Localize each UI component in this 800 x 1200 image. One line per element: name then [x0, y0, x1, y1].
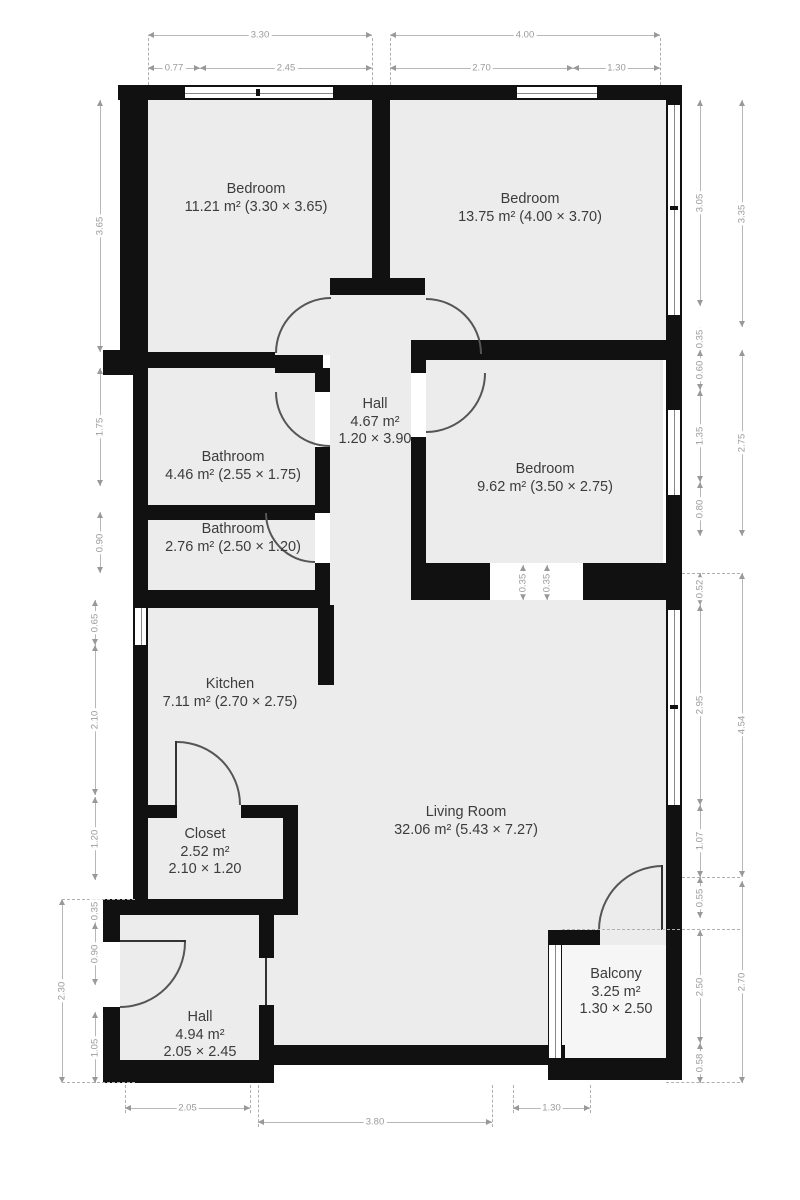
dimension-label: 1.07 [695, 830, 706, 853]
wall [666, 315, 682, 410]
room-name: Living Room [394, 804, 538, 822]
dimension: 3.80 [258, 1115, 492, 1129]
window [517, 85, 597, 100]
dimension: 1.75 [93, 368, 107, 486]
dimension: 0.65 [88, 600, 102, 645]
room-area: 2.76 m² (2.50 × 1.20) [165, 539, 301, 557]
leader-line [372, 38, 373, 85]
wall [133, 805, 177, 818]
room-area: 9.62 m² (3.50 × 2.75) [477, 479, 613, 497]
leader-line [562, 929, 740, 930]
leader-line [492, 1085, 493, 1127]
dimension: 1.07 [693, 805, 707, 877]
wall [283, 805, 298, 915]
room-name: Bathroom [165, 521, 301, 539]
room-label-balcony: Balcony 3.25 m² 1.30 × 2.50 [580, 966, 653, 1019]
room-area: 11.21 m² (3.30 × 3.65) [185, 199, 328, 217]
leader-line [682, 877, 740, 878]
dimension: 0.77 [148, 61, 200, 75]
dimension: 3.30 [148, 28, 372, 42]
dimension: 3.35 [735, 100, 749, 327]
dimension-label: 0.80 [695, 498, 706, 521]
wall [103, 899, 285, 915]
dimension: 0.35 [693, 327, 707, 350]
dimension: 2.05 [125, 1101, 250, 1115]
dimension: 2.70 [390, 61, 573, 75]
leader-line [590, 1085, 591, 1113]
dimension: 0.58 [693, 1043, 707, 1083]
dimension-label: 0.52 [695, 578, 706, 601]
wall [103, 1007, 120, 1063]
wall [120, 85, 148, 352]
dimension-label: 2.75 [737, 432, 748, 455]
wall-bedroom-divider [372, 85, 390, 278]
dimension-label: 4.00 [514, 30, 537, 41]
dimension-label: 0.35 [542, 571, 553, 594]
dimension-label: 2.95 [695, 694, 706, 717]
room-size: 2.10 × 1.20 [169, 861, 242, 879]
room-area: 4.46 m² (2.55 × 1.75) [165, 467, 301, 485]
room-label-bathroom-1: Bathroom 4.46 m² (2.55 × 1.75) [165, 449, 301, 484]
wall [103, 1060, 274, 1083]
dimension-label: 2.70 [470, 63, 493, 74]
dimension-label: 0.90 [90, 943, 101, 966]
wall [133, 645, 148, 899]
dimension: 0.35 [88, 899, 102, 923]
dimension: 2.30 [55, 899, 69, 1083]
window [133, 608, 148, 645]
wall [548, 1058, 682, 1080]
room-label-hall-upper: Hall 4.67 m² 1.20 × 3.90 [339, 396, 412, 449]
dimension-label: 2.05 [176, 1103, 199, 1114]
dimension: 4.54 [735, 573, 749, 877]
window-tick [670, 206, 678, 210]
wall [666, 85, 682, 105]
dimension-label: 2.30 [57, 980, 68, 1003]
dimension: 2.75 [735, 350, 749, 536]
dimension: 0.60 [693, 350, 707, 390]
wall [133, 375, 148, 608]
leader-line [660, 38, 661, 85]
room-name: Hall [164, 1009, 237, 1027]
dimension-label: 0.65 [90, 611, 101, 634]
dimension-label: 1.35 [695, 425, 706, 448]
room-name: Closet [169, 826, 242, 844]
wall [133, 590, 330, 608]
wall [315, 368, 330, 392]
room-label-closet: Closet 2.52 m² 2.10 × 1.20 [169, 826, 242, 879]
wall [411, 563, 490, 600]
dimension-label: 2.10 [90, 709, 101, 732]
dimension-label: 3.05 [695, 192, 706, 215]
dimension-label: 0.90 [95, 531, 106, 554]
room-label-bedroom-1: Bedroom 11.21 m² (3.30 × 3.65) [185, 181, 328, 216]
window-tick [670, 705, 678, 709]
dimension-label: 3.35 [737, 202, 748, 225]
dimension-label: 0.55 [695, 886, 706, 909]
wall [318, 605, 334, 685]
door-leaf-kitchen [175, 741, 177, 805]
dimension: 1.20 [88, 797, 102, 880]
room-size: 1.30 × 2.50 [580, 1001, 653, 1019]
dimension: 0.80 [693, 482, 707, 536]
room-name: Balcony [580, 966, 653, 984]
wall [666, 805, 682, 1080]
wall [548, 930, 600, 945]
dimension-label: 1.30 [540, 1103, 563, 1114]
dimension: 0.55 [693, 877, 707, 918]
dimension-label: 0.35 [518, 571, 529, 594]
room-name: Hall [339, 396, 412, 414]
room-label-bedroom-2: Bedroom 13.75 m² (4.00 × 3.70) [458, 191, 602, 226]
room-name: Bedroom [477, 461, 613, 479]
dimension-label: 2.70 [737, 971, 748, 994]
wall [583, 563, 682, 600]
room-area: 13.75 m² (4.00 × 3.70) [458, 209, 602, 227]
dimension: 0.35 [516, 565, 530, 600]
window [666, 105, 682, 315]
dimension: 1.30 [513, 1101, 590, 1115]
floor-bathroom-1 [148, 368, 315, 505]
room-area: 3.25 m² [580, 984, 653, 1002]
dimension-label: 2.45 [275, 63, 298, 74]
dimension: 3.65 [93, 100, 107, 352]
dimension-label: 0.35 [90, 900, 101, 923]
dimension: 0.35 [540, 565, 554, 600]
dimension: 0.52 [693, 573, 707, 605]
dimension: 2.45 [200, 61, 372, 75]
wall [103, 899, 120, 942]
room-label-hall-lower: Hall 4.94 m² 2.05 × 2.45 [164, 1009, 237, 1062]
room-label-kitchen: Kitchen 7.11 m² (2.70 × 2.75) [163, 676, 298, 711]
wall [411, 437, 426, 563]
wall [133, 352, 275, 368]
leader-line [250, 1085, 251, 1113]
dimension: 2.10 [88, 645, 102, 795]
dimension: 0.90 [93, 512, 107, 573]
wall [330, 278, 425, 295]
room-name: Bathroom [165, 449, 301, 467]
door-leaf-balcony [661, 865, 663, 930]
wall [259, 1045, 565, 1065]
wall [315, 447, 330, 513]
dimension: 2.70 [735, 881, 749, 1083]
room-name: Bedroom [458, 191, 602, 209]
room-area: 4.94 m² [164, 1027, 237, 1045]
dimension: 1.35 [693, 390, 707, 482]
wall [259, 915, 274, 958]
room-area: 2.52 m² [169, 844, 242, 862]
wall [333, 85, 517, 100]
room-area: 4.67 m² [339, 414, 412, 432]
dimension-label: 2.50 [695, 975, 706, 998]
room-name: Bedroom [185, 181, 328, 199]
leader-line [682, 573, 740, 574]
window-tick [256, 89, 260, 96]
dimension-label: 0.58 [695, 1052, 706, 1075]
door-leaf-entry [120, 940, 186, 942]
room-label-bedroom-3: Bedroom 9.62 m² (3.50 × 2.75) [477, 461, 613, 496]
room-size: 2.05 × 2.45 [164, 1044, 237, 1062]
dimension-label: 1.75 [95, 416, 106, 439]
dimension: 1.05 [88, 1012, 102, 1083]
room-area: 7.11 m² (2.70 × 2.75) [163, 694, 298, 712]
dimension-label: 1.05 [90, 1036, 101, 1059]
room-area: 32.06 m² (5.43 × 7.27) [394, 822, 538, 840]
dimension-label: 1.30 [605, 63, 628, 74]
room-name: Kitchen [163, 676, 298, 694]
dimension-label: 3.65 [95, 215, 106, 238]
dimension: 0.90 [88, 923, 102, 985]
wall [411, 340, 426, 373]
dimension-label: 0.60 [695, 359, 706, 382]
dimension: 1.30 [573, 61, 660, 75]
dimension-label: 0.77 [163, 63, 186, 74]
dimension: 2.50 [693, 930, 707, 1043]
dimension-label: 0.35 [695, 327, 706, 350]
dimension-label: 4.54 [737, 714, 748, 737]
dimension: 4.00 [390, 28, 660, 42]
dimension-label: 1.20 [90, 827, 101, 850]
window [666, 410, 682, 495]
dimension: 3.05 [693, 100, 707, 306]
dimension: 2.95 [693, 605, 707, 805]
room-label-living-room: Living Room 32.06 m² (5.43 × 7.27) [394, 804, 538, 839]
door-leaf [265, 958, 267, 1005]
room-size: 1.20 × 3.90 [339, 431, 412, 449]
dimension-label: 3.80 [364, 1117, 387, 1128]
dimension-label: 3.30 [249, 30, 272, 41]
balcony-railing [548, 945, 562, 1060]
room-label-bathroom-2: Bathroom 2.76 m² (2.50 × 1.20) [165, 521, 301, 556]
floor-plan: 3.30 4.00 0.77 2.45 2.70 1.30 2.05 3.80 … [0, 0, 800, 1200]
